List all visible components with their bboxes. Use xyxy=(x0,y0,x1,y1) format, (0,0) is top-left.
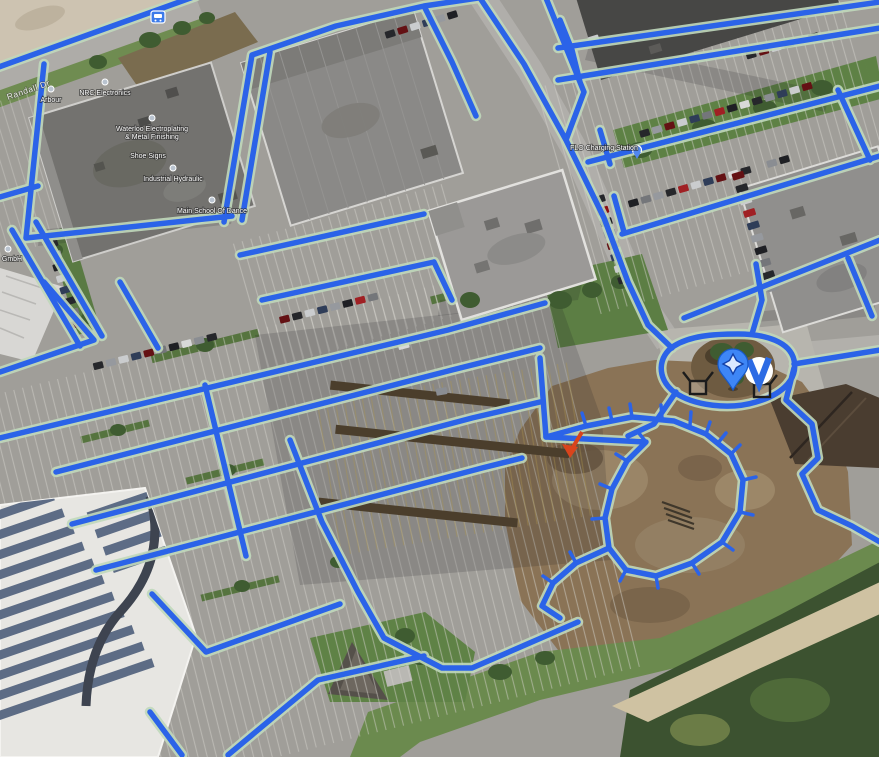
poi-label-dance[interactable]: Main School Of Dance xyxy=(177,208,247,215)
poi-label-nrc[interactable]: NRC Electronics xyxy=(79,90,131,97)
poi-label-gmbh[interactable]: GmbH xyxy=(2,256,22,263)
satellite-map[interactable]: FLO Charging Station Arbour NRC Electron… xyxy=(0,0,879,757)
checkmark-circle-marker[interactable] xyxy=(745,357,773,385)
poi-label-hydraulic[interactable]: Industrial Hydraulic xyxy=(143,176,203,183)
charging-station-label[interactable]: FLO Charging Station xyxy=(570,145,638,152)
poi-label-signs[interactable]: Shoe Signs xyxy=(130,153,166,160)
satellite-map-viewport[interactable]: FLO Charging Station Arbour NRC Electron… xyxy=(0,0,879,757)
bus-stop-icon[interactable] xyxy=(151,11,165,23)
poi-label-arbour[interactable]: Arbour xyxy=(40,97,62,104)
poi-label-electroplating-1[interactable]: Waterloo Electroplating xyxy=(116,126,188,133)
poi-pin-signs[interactable]: Shoe Signs xyxy=(130,153,166,160)
poi-label-electroplating-2[interactable]: & Metal Finishing xyxy=(125,134,179,141)
